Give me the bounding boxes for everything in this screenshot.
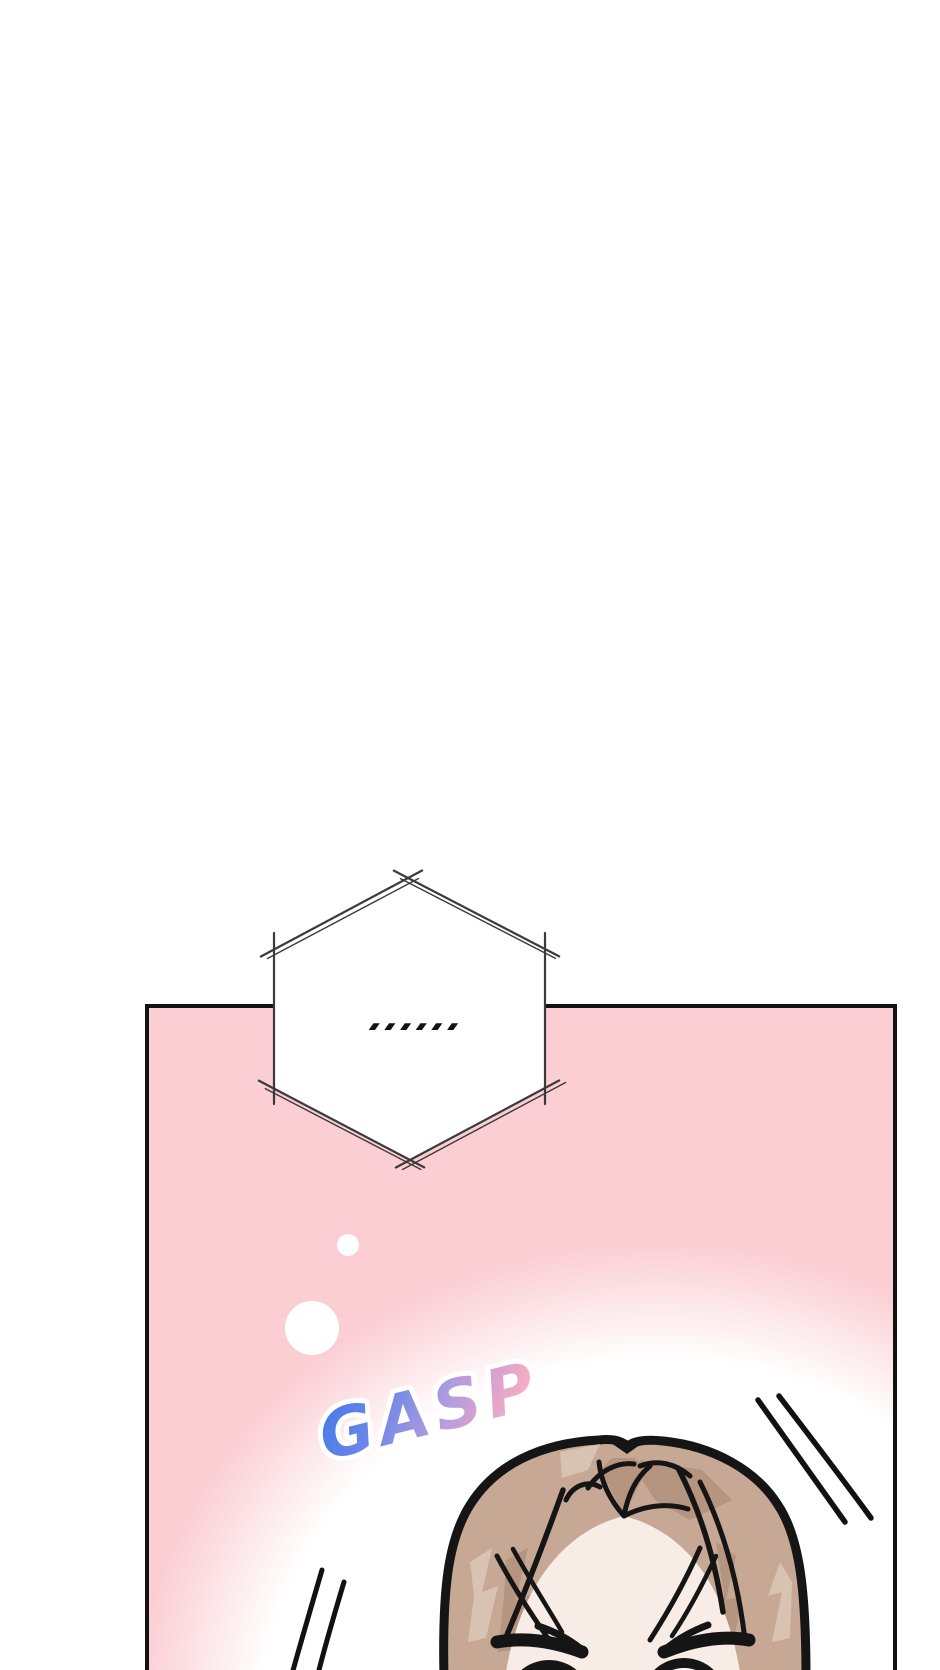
comic-art: GASP bbox=[0, 0, 940, 1670]
comic-page: GASP bbox=[0, 0, 940, 1670]
thought-circle-medium bbox=[285, 1301, 339, 1355]
panel: GASP bbox=[135, 1006, 940, 1670]
page-top-margin bbox=[0, 0, 940, 1006]
character-head bbox=[444, 1439, 806, 1670]
thought-circle-small bbox=[337, 1234, 359, 1256]
